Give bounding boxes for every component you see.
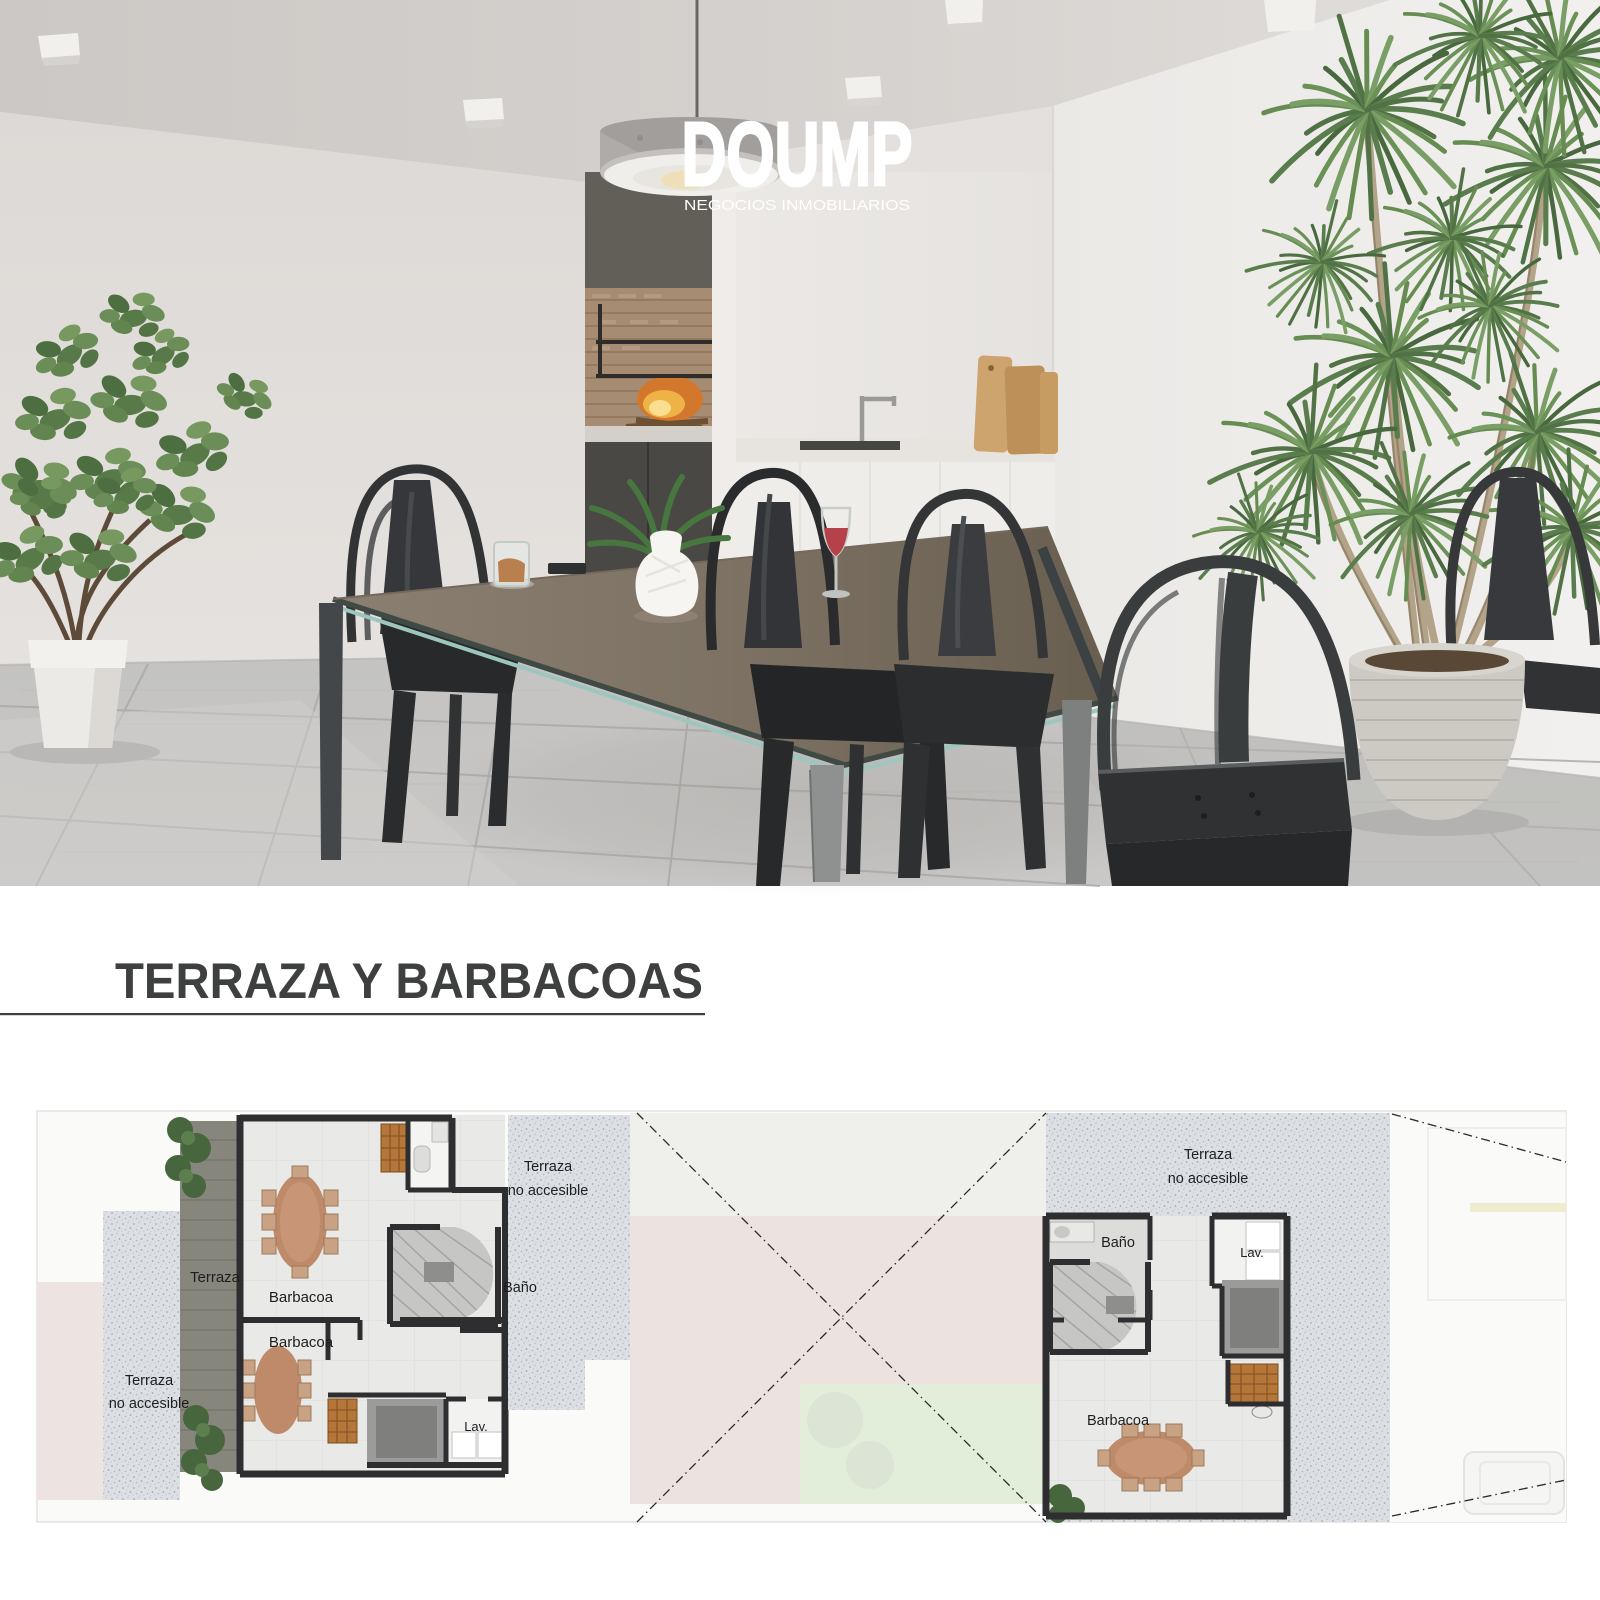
- svg-text:Lav.: Lav.: [1240, 1245, 1264, 1260]
- svg-text:Terraza: Terraza: [190, 1269, 241, 1286]
- svg-text:Terraza: Terraza: [524, 1159, 573, 1175]
- svg-text:Barbacoa: Barbacoa: [269, 1289, 334, 1306]
- svg-text:no accesible: no accesible: [508, 1183, 589, 1199]
- svg-text:Terraza: Terraza: [125, 1373, 174, 1389]
- svg-text:TERRAZA Y BARBACOAS: TERRAZA Y BARBACOAS: [115, 953, 703, 1009]
- svg-text:Terraza: Terraza: [1184, 1147, 1233, 1163]
- svg-text:Lav.: Lav.: [464, 1419, 488, 1434]
- svg-text:no accesible: no accesible: [109, 1396, 190, 1412]
- svg-text:Baño: Baño: [1101, 1235, 1135, 1251]
- svg-text:Barbacoa: Barbacoa: [269, 1334, 334, 1351]
- svg-text:Baño: Baño: [503, 1280, 537, 1296]
- svg-text:NEGOCIOS INMOBILIARIOS: NEGOCIOS INMOBILIARIOS: [684, 198, 910, 214]
- svg-text:Barbacoa: Barbacoa: [1087, 1413, 1150, 1429]
- svg-text:no accesible: no accesible: [1168, 1171, 1249, 1187]
- svg-text:DOUMP: DOUMP: [682, 105, 913, 205]
